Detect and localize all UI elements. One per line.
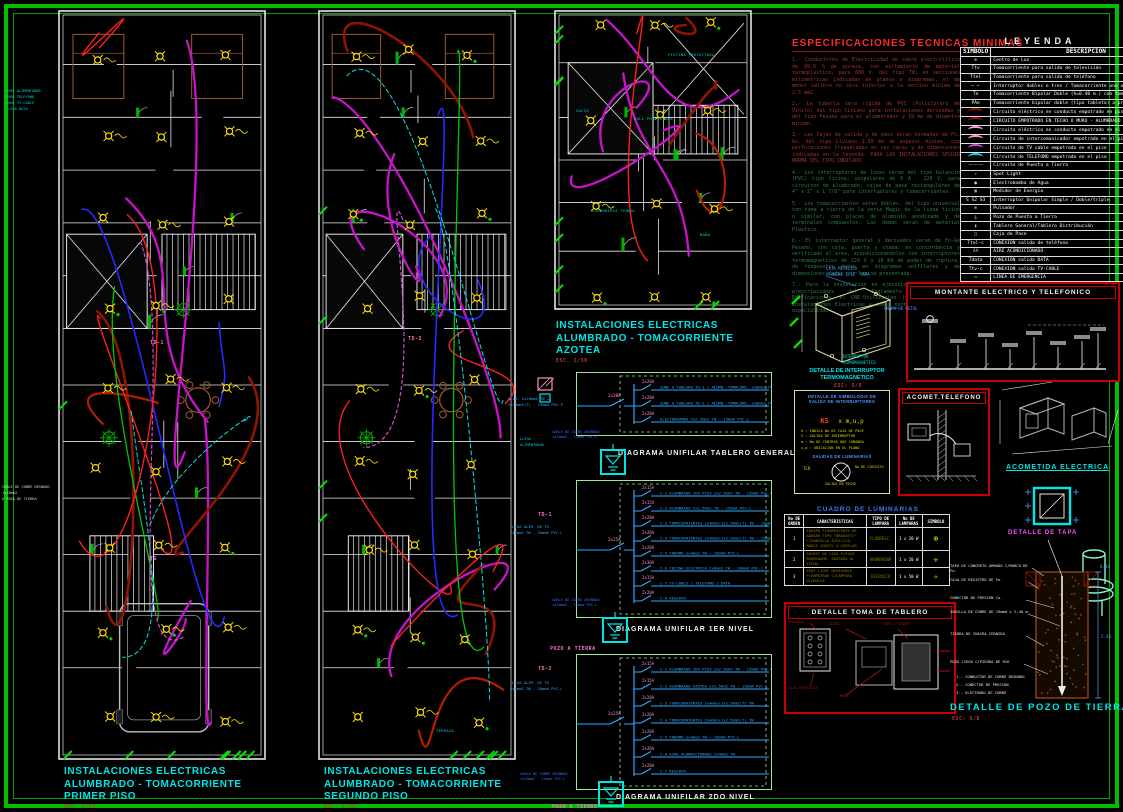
light-symbol bbox=[416, 707, 439, 717]
legend-symbol: Ttv bbox=[961, 65, 991, 74]
legend-title: LEYENDA bbox=[960, 36, 1120, 46]
legend-row: Circuito de intercomunicador empotrado e… bbox=[961, 135, 1123, 144]
legend-row: AAAIRE ACONDICIONADO bbox=[961, 248, 1123, 257]
scale-note: ESC. 1/50 bbox=[324, 804, 502, 810]
cuadro-header: TIPO DE LAMPARA bbox=[866, 515, 895, 528]
roof-linework bbox=[552, 8, 754, 312]
light-symbol bbox=[155, 51, 165, 61]
legend-row: ⏚Pozo de Puesta a Tierra bbox=[961, 213, 1123, 222]
light-symbol bbox=[356, 384, 379, 394]
light-symbol bbox=[104, 131, 127, 141]
light-symbol bbox=[476, 136, 499, 146]
light-symbol bbox=[460, 635, 470, 645]
cuadro-lamparas: 1 x 50 W bbox=[895, 568, 922, 586]
circuit-arc-icon bbox=[968, 117, 983, 125]
margin-notes-ground: CABLE DE COBRE DESNUDO1x10mm2A POZO DE T… bbox=[2, 484, 56, 502]
circuit-arc-icon bbox=[968, 153, 983, 161]
light-symbol bbox=[353, 712, 363, 722]
legend-row: TdataCONEXION salida DATA bbox=[961, 256, 1123, 265]
cuadro-caracteristicas: EQUIPO FLUORESCENTE DE ADOSAR TIPO "BRAQ… bbox=[804, 528, 866, 551]
light-symbol bbox=[474, 718, 489, 731]
light-symbol bbox=[466, 460, 476, 470]
svg-text:SALIDA EN TECHO: SALIDA EN TECHO bbox=[825, 482, 856, 486]
legend-desc: Tablero General/Tablero Distribución bbox=[991, 222, 1123, 231]
margin-note: ALIMENTADOR bbox=[520, 442, 552, 448]
svg-text:2.40: 2.40 bbox=[1101, 634, 1112, 639]
cuadro-order: 3 bbox=[785, 568, 804, 586]
light-symbol bbox=[649, 292, 659, 302]
legend-desc: Pulsador bbox=[991, 205, 1123, 214]
svg-text:TLR: TLR bbox=[803, 466, 811, 471]
pozo-annotation: TAPA DE CONCRETO ARMADO C/MARCO DE Fo. bbox=[950, 564, 1034, 573]
legend-desc: CONEXION salida de teléfono bbox=[991, 239, 1123, 248]
legend-glyph-icon: Ttv-c bbox=[969, 267, 983, 272]
light-symbol bbox=[410, 632, 425, 645]
light-symbol bbox=[404, 45, 414, 55]
legend-symbol: AA bbox=[961, 248, 991, 257]
light-symbol bbox=[363, 304, 373, 314]
legend-row: ⌐ ⌐Interruptor dobles o tres / Tomacorri… bbox=[961, 82, 1123, 91]
cuadro-caracteristicas: SOCKET DE LOZA P/FOCO AHORRADOR, ADOSADO… bbox=[804, 550, 866, 568]
legend-row: ▭LINEA DE EMERGENCIA bbox=[961, 273, 1123, 282]
light-symbol bbox=[405, 220, 415, 230]
title-line: ALUMBRADO - TOMACORRIENTE bbox=[324, 779, 502, 792]
margin-note: A POZO DE TIERRA bbox=[2, 496, 56, 502]
legend-row: Ttel-cCONEXION salida de teléfono bbox=[961, 239, 1123, 248]
legend-glyph-icon: Ttel bbox=[970, 75, 981, 80]
light-symbol bbox=[223, 622, 246, 632]
legend-row: ◉Electrobomba de Agua bbox=[961, 179, 1123, 188]
legend-row: T⊘Tomacorriente Bipolar Doble (h=0.40 m.… bbox=[961, 90, 1123, 99]
caja-label-top: CAJA METALICAPLANCHA 1/16" TAPA bbox=[826, 266, 896, 277]
light-symbol bbox=[91, 463, 101, 473]
light-symbol bbox=[151, 712, 174, 722]
light-symbol bbox=[467, 549, 477, 559]
cuadro-simbolo: ✛ bbox=[922, 550, 949, 568]
legend-glyph-icon: ▢ bbox=[974, 232, 977, 237]
light-symbol bbox=[415, 291, 425, 301]
legend-desc: Circuito de TELEFONO empotrado en el pis… bbox=[991, 153, 1123, 162]
legend-glyph-icon: ◉ bbox=[974, 181, 977, 186]
light-symbol bbox=[592, 293, 607, 306]
legend-symbol: ⊕ bbox=[961, 56, 991, 65]
legend-desc: Tomacorriente bipolar doble (tipo tablet… bbox=[991, 99, 1123, 108]
legend-desc: Centro de Luz bbox=[991, 56, 1123, 65]
plan-label: TD-2 bbox=[408, 336, 422, 342]
legend-symbol: S S2 S3 bbox=[961, 196, 991, 205]
light-symbol bbox=[220, 542, 235, 555]
legend-glyph-icon: AA bbox=[973, 249, 979, 254]
technical-specifications: ESPECIFICACIONES TECNICAS MINIMAS 1.- Co… bbox=[792, 38, 960, 274]
legend-desc: Circuito eléctrico en conducto empotrado… bbox=[991, 126, 1123, 135]
legend-desc: Interruptor dobles o tres / Tomacorrient… bbox=[991, 82, 1123, 91]
legend-glyph-icon: S S2 S3 bbox=[966, 198, 985, 203]
margin-notes-plan2: LLEGAALIMENTADOR bbox=[520, 436, 552, 448]
light-symbol bbox=[98, 628, 113, 641]
light-symbol bbox=[98, 213, 108, 223]
plan-label: VACIO bbox=[576, 108, 589, 113]
cad-sheet: INSTALACIONES ELECTRICAS ALUMBRADO - TOM… bbox=[0, 0, 1123, 812]
light-symbol bbox=[586, 116, 596, 126]
plan-label: TG bbox=[150, 556, 157, 562]
legend-row: ▣Medidor de Energía bbox=[961, 187, 1123, 196]
caja-title: DETALLE DE INTERRUPTORTERMOMAGNETICO bbox=[786, 368, 908, 382]
legend-row: TtelTomacorriente para salida de teléfon… bbox=[961, 73, 1123, 82]
legend-symbol: Ttv-c bbox=[961, 265, 991, 274]
specs-title: ESPECIFICACIONES TECNICAS MINIMAS bbox=[792, 38, 960, 52]
legend-row: PA⊘Tomacorriente bipolar doble (tipo tab… bbox=[961, 99, 1123, 108]
legend-row: CIRCUITO EMPOTRADO EN TECHO O MURO - ALU… bbox=[961, 117, 1123, 126]
light-symbol bbox=[105, 543, 115, 553]
legend-desc: Tomacorriente para salida de teléfono bbox=[991, 73, 1123, 82]
legend-glyph-icon: ⊕ bbox=[974, 58, 977, 63]
light-symbol bbox=[418, 136, 428, 146]
plan-label: BAÑO bbox=[700, 232, 710, 237]
title-line: SEGUNDO PISO bbox=[324, 791, 502, 804]
svg-text:CAJA METALICA: CAJA METALICA bbox=[788, 685, 818, 690]
light-symbol bbox=[650, 20, 673, 30]
light-symbol bbox=[472, 293, 482, 303]
light-symbol bbox=[408, 469, 418, 479]
pozo-annotation: VARILLA DE COBRE DE 19mm⌀ x 2.40 m. bbox=[950, 610, 1030, 615]
caja-scale: ESC: S/E bbox=[834, 383, 862, 389]
legend-glyph-icon: PA⊘ bbox=[971, 101, 979, 106]
legend-symbol: Ttel bbox=[961, 73, 991, 82]
title-line: PRIMER PISO bbox=[64, 791, 242, 804]
legend-symbol: Ttel-c bbox=[961, 239, 991, 248]
light-symbol bbox=[156, 132, 166, 142]
floor-plan-azotea bbox=[552, 8, 754, 312]
legend-glyph-icon: ✧ bbox=[974, 172, 977, 177]
title-line: INSTALACIONES ELECTRICAS bbox=[556, 320, 734, 333]
legend-symbol: ⏚ bbox=[961, 213, 991, 222]
luminaire-schedule-title: CUADRO DE LUMINARIAS bbox=[784, 506, 952, 513]
telephone-service-drawing bbox=[900, 406, 988, 486]
scale-note: ESC. 1/50 bbox=[64, 804, 242, 810]
legend-desc: AIRE ACONDICIONADO bbox=[991, 248, 1123, 257]
margin-notes-left: SUBE ALIMENTADORSUBE TELEFONOSUBE TV-CAB… bbox=[6, 88, 56, 112]
title-line: AZOTEA bbox=[556, 345, 734, 358]
legend-desc: Circuito de intercomunicador empotrado e… bbox=[991, 135, 1123, 144]
panel-connection-detail: DETALLE TOMA DE TABLERO CAJA METALICADAD… bbox=[784, 602, 956, 714]
riser-diagram bbox=[908, 301, 1118, 375]
light-symbol bbox=[596, 20, 606, 30]
legend-symbol: PA⊘ bbox=[961, 99, 991, 108]
spec-item: 3.- Las Cajas de salida y de paso seran … bbox=[792, 132, 960, 165]
light-symbol bbox=[154, 540, 177, 550]
legend-desc: Spot Light bbox=[991, 170, 1123, 179]
legend-desc: CONEXION salida TV-CABLE bbox=[991, 265, 1123, 274]
p1-linework bbox=[56, 8, 268, 762]
formula-vars: x m,u,p bbox=[838, 418, 863, 425]
legend: LEYENDA SIMBOLO DESCRIPCION ⊕Centro de L… bbox=[960, 36, 1120, 282]
legend-symbol: T⊘ bbox=[961, 90, 991, 99]
circuit-arc-icon bbox=[968, 135, 983, 143]
plan-label: TD-1 bbox=[150, 340, 164, 346]
legend-desc: Tomacorriente para salida de televisión bbox=[991, 65, 1123, 74]
legend-desc: Medidor de Energía bbox=[991, 187, 1123, 196]
cuadro-order: 2 bbox=[785, 550, 804, 568]
legend-glyph-icon: ⏚ bbox=[973, 216, 978, 221]
luminaire-schedule-table: No DE ORDENCARACTERISTICASTIPO DE LAMPAR… bbox=[784, 514, 950, 586]
title-segundo-piso: INSTALACIONES ELECTRICAS ALUMBRADO - TOM… bbox=[324, 766, 502, 810]
legend-row: Circuito eléctrico en conducto empotrado… bbox=[961, 108, 1123, 117]
legend-row: ▢Caja de Pase bbox=[961, 230, 1123, 239]
legend-row: ⊙Pulsador bbox=[961, 205, 1123, 214]
legend-symbol bbox=[961, 144, 991, 153]
legend-row: Ttv-cCONEXION salida TV-CABLE bbox=[961, 265, 1123, 274]
light-symbol bbox=[706, 17, 721, 30]
cuadro-header: No DE LAMPARAS bbox=[895, 515, 922, 528]
legend-symbol: ▮ bbox=[961, 222, 991, 231]
switch-symbology-detail: DETALLE DE SIMBOLOGIA DE SALIDA DE INTER… bbox=[794, 390, 890, 494]
spec-item: 4.- Los interruptores de luces seran del… bbox=[792, 170, 960, 196]
legend-glyph-icon: ⊙ bbox=[974, 206, 977, 211]
title-line: ALUMBRADO - TOMACORRIENTE bbox=[556, 333, 734, 346]
light-symbol bbox=[409, 540, 419, 550]
cuadro-tipo: DICROICO bbox=[866, 568, 895, 586]
light-symbol bbox=[105, 712, 115, 722]
legend-row: −·−·−Circuito de Puesta a Tierra bbox=[961, 162, 1123, 171]
title-azotea: INSTALACIONES ELECTRICAS ALUMBRADO - TOM… bbox=[556, 320, 734, 364]
light-symbol bbox=[477, 208, 492, 221]
title-line: ALUMBRADO - TOMACORRIENTE bbox=[64, 779, 242, 792]
light-symbol bbox=[158, 220, 181, 230]
riser-detail-title: MONTANTE ELECTRICO Y TELEFONICO bbox=[910, 286, 1116, 299]
legend-desc: Circuito de TV cable empotrado en el pis… bbox=[991, 144, 1123, 153]
cuadro-row: 3SPOT LIGHT DIRIGIBLE P/EMPOTRAR C/LAMPA… bbox=[785, 568, 950, 586]
cuadro-header: CARACTERISTICAS bbox=[804, 515, 866, 528]
spec-item: 1.- Conductores de Electricidad de cobre… bbox=[792, 57, 960, 96]
legend-row: Circuito eléctrico en conducto empotrado… bbox=[961, 126, 1123, 135]
cuadro-header: No DE ORDEN bbox=[785, 515, 804, 528]
legend-symbol: ◉ bbox=[961, 179, 991, 188]
cuadro-simbolo: ✧ bbox=[922, 568, 949, 586]
spec-item: 2.- La tuberia sera rigida de PVC (Polic… bbox=[792, 101, 960, 127]
light-symbol bbox=[353, 625, 376, 638]
pozo-annotation: TIERRA DE CHACRA CERNIDA bbox=[950, 632, 1005, 637]
pozo-annotation: CAJA DE REGISTRO DE Fo. bbox=[950, 578, 1003, 583]
legend-symbol bbox=[961, 135, 991, 144]
legend-row: ⊕Centro de Luz bbox=[961, 56, 1123, 65]
cuadro-lamparas: 1 x 20 W bbox=[895, 550, 922, 568]
cuadro-order: 1 bbox=[785, 528, 804, 551]
formula-ks: KS bbox=[820, 417, 828, 425]
telephone-service-title: ACOMET.TELEFONO bbox=[902, 392, 986, 404]
riser-detail-box: MONTANTE ELECTRICO Y TELEFONICO bbox=[906, 282, 1120, 382]
pozo-note: 3.- ELECTRODO DE COBRE bbox=[956, 690, 1006, 695]
legend-desc: CONEXION salida DATA bbox=[991, 256, 1123, 265]
panel-connection-title: DETALLE TOMA DE TABLERO bbox=[788, 606, 952, 619]
legend-symbol bbox=[961, 126, 991, 135]
legend-desc: Circuito eléctrico en conducto empotrado… bbox=[991, 108, 1123, 117]
cuadro-tipo: FLUORESC. bbox=[866, 528, 895, 551]
circuit-arc-icon bbox=[968, 144, 983, 152]
light-symbol bbox=[222, 383, 245, 393]
light-symbol bbox=[224, 217, 234, 227]
legend-glyph-icon: ▣ bbox=[974, 189, 977, 194]
cuadro-caracteristicas: SPOT LIGHT DIRIGIBLE P/EMPOTRAR C/LAMPAR… bbox=[804, 568, 866, 586]
light-symbol bbox=[224, 294, 234, 304]
legend-desc: Pozo de Puesta a Tierra bbox=[991, 213, 1123, 222]
legend-desc: Caja de Pase bbox=[991, 230, 1123, 239]
breaker-box-detail bbox=[786, 266, 908, 384]
light-symbol bbox=[166, 374, 189, 384]
light-symbol bbox=[220, 50, 230, 60]
title-line: INSTALACIONES ELECTRICAS bbox=[324, 766, 502, 779]
light-symbol bbox=[151, 301, 174, 314]
caja-label-side: CHAPA DE METAL bbox=[884, 306, 924, 311]
legend-desc: Circuito de Puesta a Tierra bbox=[991, 162, 1123, 171]
light-symbol bbox=[151, 467, 161, 477]
luminaire-symbol: TLRNo DE CIRCUITOSALIDA EN TECHO bbox=[795, 460, 889, 486]
plan-label: PISCINA PROYECTADA bbox=[668, 52, 715, 57]
legend-symbol: ⌐ ⌐ bbox=[961, 82, 991, 91]
legend-desc: Interruptor Unipolar Simple / Doble/trip… bbox=[991, 196, 1123, 205]
svg-text:0.40: 0.40 bbox=[1100, 564, 1111, 569]
legend-desc: Electrobomba de Agua bbox=[991, 179, 1123, 188]
electric-service-isometric bbox=[992, 380, 1120, 462]
legend-row: ▮Tablero General/Tablero Distribución bbox=[961, 222, 1123, 231]
svg-text:MURO: MURO bbox=[840, 693, 850, 698]
legend-symbol: ▢ bbox=[961, 230, 991, 239]
pozo-note: 1.- CONDUCTOR DE COBRE DESNUDO bbox=[956, 674, 1025, 679]
cuadro-simbolo: ⊕ bbox=[922, 528, 949, 551]
legend-row: TtvTomacorriente para salida de televisi… bbox=[961, 65, 1123, 74]
legend-symbol: ▣ bbox=[961, 187, 991, 196]
light-symbol bbox=[225, 126, 248, 136]
svg-text:TABLERO: TABLERO bbox=[788, 621, 805, 624]
margin-note: LLEGA DATA bbox=[6, 106, 56, 112]
symbology-title: SALIDA DE INTERRUPTORES bbox=[795, 399, 889, 404]
floor-plan-segundo-piso bbox=[316, 8, 518, 762]
symbology-items: K : INDICA No DE CAJA DE PASES : SALIDA … bbox=[801, 429, 889, 451]
legend-row: Circuito de TV cable empotrado en el pis… bbox=[961, 144, 1123, 153]
luminaire-schedule: CUADRO DE LUMINARIAS No DE ORDENCARACTER… bbox=[784, 506, 952, 586]
legend-symbol: Tdata bbox=[961, 256, 991, 265]
light-symbol bbox=[93, 55, 116, 65]
legend-symbol: ⊙ bbox=[961, 205, 991, 214]
legend-row: ✧Spot Light bbox=[961, 170, 1123, 179]
legend-symbol: −·−·− bbox=[961, 162, 991, 171]
pozo-annotation: POZO CIEGO C/PIEDRA DE RIO bbox=[950, 660, 1009, 665]
legend-row: S S2 S3Interruptor Unipolar Simple / Dob… bbox=[961, 196, 1123, 205]
title-line: INSTALACIONES ELECTRICAS bbox=[64, 766, 242, 779]
pozo-note: 2.- CONECTOR DE PRESION bbox=[956, 682, 1009, 687]
cuadro-row: 2SOCKET DE LOZA P/FOCO AHORRADOR, ADOSAD… bbox=[785, 550, 950, 568]
legend-glyph-icon: −·−·− bbox=[969, 163, 983, 168]
electric-service-title: ACOMETIDA ELECTRICA bbox=[1006, 464, 1109, 471]
circuit-arc-icon bbox=[968, 126, 983, 134]
floor-plan-primer-piso bbox=[56, 8, 268, 762]
cuadro-row: 1EQUIPO FLUORESCENTE DE ADOSAR TIPO "BRA… bbox=[785, 528, 950, 551]
light-symbol bbox=[701, 292, 716, 305]
legend-symbol: ▭ bbox=[961, 273, 991, 282]
svg-text:TAPA C/CHAPA: TAPA C/CHAPA bbox=[882, 621, 910, 626]
legend-glyph-icon: Ttv bbox=[971, 66, 979, 71]
legend-symbol bbox=[961, 108, 991, 117]
light-symbol bbox=[470, 375, 480, 385]
circuit-arc-icon bbox=[968, 108, 983, 116]
svg-text:No DE CIRCUITO: No DE CIRCUITO bbox=[855, 465, 884, 469]
legend-symbol bbox=[961, 153, 991, 162]
light-symbol bbox=[462, 50, 477, 63]
plan-label: TERRAZA bbox=[436, 728, 454, 733]
scale-note: ESC. 1/50 bbox=[556, 358, 734, 364]
panel-connection-drawing: CAJA METALICADADOTAPA C/CHAPAMUROTABLERO bbox=[786, 621, 954, 705]
legend-desc: Tomacorriente Bipolar Doble (h=0.40 m.) … bbox=[991, 90, 1123, 99]
plan-label: HALL PROYECTADA bbox=[634, 116, 673, 121]
light-symbol bbox=[220, 717, 243, 727]
title-primer-piso: INSTALACIONES ELECTRICAS ALUMBRADO - TOM… bbox=[64, 766, 242, 810]
light-symbol bbox=[652, 199, 662, 209]
legend-glyph-icon: ▭ bbox=[974, 275, 977, 280]
caja-label-bottom: INTERRUPTORTERMOMAGNETICO bbox=[842, 354, 906, 365]
legend-glyph-icon: ▮ bbox=[974, 224, 977, 229]
plan-label: LAVANDERIA TENDAL bbox=[592, 208, 636, 213]
spec-item: 5.- Los tomacorrientes seran dobles, del… bbox=[792, 201, 960, 234]
svg-text:DADO: DADO bbox=[830, 621, 840, 626]
cuadro-header: SIMBOLO bbox=[922, 515, 949, 528]
ground-well-detail: DETALLE DE TAPA DETALLE DE POZO DE TIERR… bbox=[948, 476, 1120, 726]
legend-desc: LINEA DE EMERGENCIA bbox=[991, 273, 1123, 282]
legend-glyph-icon: Tdata bbox=[969, 258, 983, 263]
legend-table: SIMBOLO DESCRIPCION ⊕Centro de LuzTtvTom… bbox=[960, 47, 1123, 282]
legend-symbol bbox=[961, 117, 991, 126]
cuadro-tipo: AHORRADOR bbox=[866, 550, 895, 568]
legend-header-desc: DESCRIPCION bbox=[991, 48, 1123, 57]
legend-symbol: ✧ bbox=[961, 170, 991, 179]
p2-linework bbox=[316, 8, 518, 762]
cuadro-lamparas: 1 x 20 W bbox=[895, 528, 922, 551]
light-symbol bbox=[355, 456, 378, 466]
legend-glyph-icon: Ttel-c bbox=[967, 241, 984, 246]
legend-header-symbol: SIMBOLO bbox=[961, 48, 991, 57]
legend-desc: CIRCUITO EMPOTRADO EN TECHO O MURO - ALU… bbox=[991, 117, 1123, 126]
legend-glyph-icon: T⊘ bbox=[973, 92, 979, 97]
legend-row: Circuito de TELEFONO empotrado en el pis… bbox=[961, 153, 1123, 162]
pozo-annotation: CONECTOR DE PRESION Cu. bbox=[950, 596, 1003, 601]
legend-glyph-icon: ⌐ ⌐ bbox=[971, 84, 979, 89]
